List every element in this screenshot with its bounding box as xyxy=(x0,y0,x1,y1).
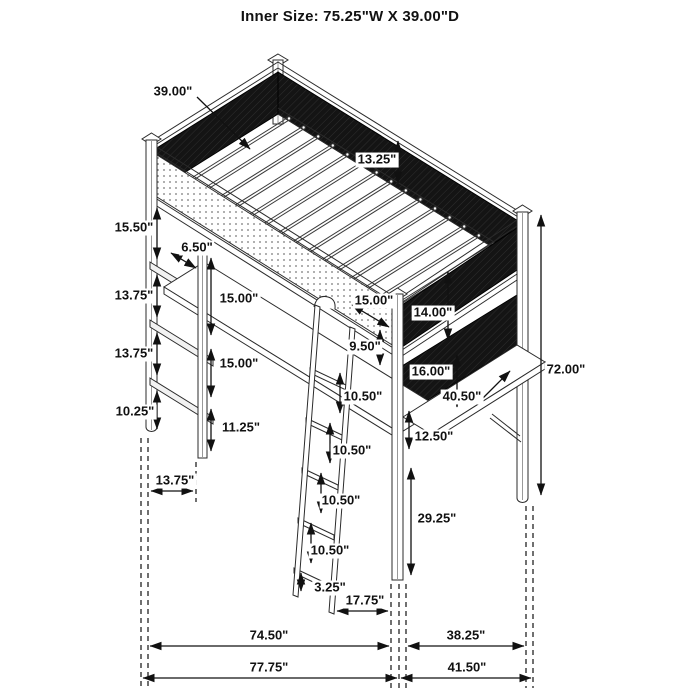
dim-label-desk-clearance-upper: 15.00" xyxy=(218,292,261,307)
dim-label-bed-to-shelf1: 15.50" xyxy=(113,221,156,236)
dim-label-shelf3-to-floor: 10.25" xyxy=(114,405,157,420)
dim-label-shelf2-to-shelf3: 13.75" xyxy=(113,347,156,362)
dim-label-hook-to-rung1: 9.50" xyxy=(347,340,382,355)
dim-label-right-desk-width: 40.50" xyxy=(441,390,484,405)
dim-label-right-panel-lower: 16.00" xyxy=(410,365,453,380)
dimension-labels: 39.00"13.25"15.50"6.50"13.75"13.75"10.25… xyxy=(0,0,700,700)
dim-label-guard-rail-height: 13.25" xyxy=(356,153,399,168)
dim-label-shelf1-to-shelf2: 13.75" xyxy=(113,289,156,304)
dim-label-right-panel-upper: 14.00" xyxy=(412,306,455,321)
dim-label-outer-span-right: 41.50" xyxy=(446,661,489,676)
dim-label-rung4-to-rung5: 10.50" xyxy=(309,544,352,559)
dim-label-leg-lower-section: 11.25" xyxy=(220,421,262,436)
dim-label-desk-clearance-lower: 15.00" xyxy=(218,357,261,372)
diagram-page: Inner Size: 75.25"W X 39.00"D xyxy=(0,0,700,700)
dim-label-ladder-offset: 17.75" xyxy=(344,594,387,609)
dim-label-inner-span-right: 38.25" xyxy=(445,629,488,644)
dim-label-desk-to-floor: 29.25" xyxy=(416,512,459,527)
dim-label-rail-to-post: 15.00" xyxy=(353,294,396,309)
dim-label-rung2-to-rung3: 10.50" xyxy=(331,444,374,459)
dim-label-left-base-offset: 13.75" xyxy=(154,474,197,489)
dim-label-ladder-foot: 3.25" xyxy=(312,581,347,596)
dim-label-panel-to-desk: 12.50" xyxy=(413,430,456,445)
dim-label-inner-span-left: 74.50" xyxy=(248,629,291,644)
dim-label-rung3-to-rung4: 10.50" xyxy=(320,494,363,509)
dim-label-overall-height: 72.00" xyxy=(545,363,588,378)
dim-label-outer-span-left: 77.75" xyxy=(248,661,291,676)
dim-label-shelf-depth: 6.50" xyxy=(179,241,214,256)
dim-label-rung1-to-rung2: 10.50" xyxy=(342,390,385,405)
dim-label-inner-depth: 39.00" xyxy=(152,85,195,100)
